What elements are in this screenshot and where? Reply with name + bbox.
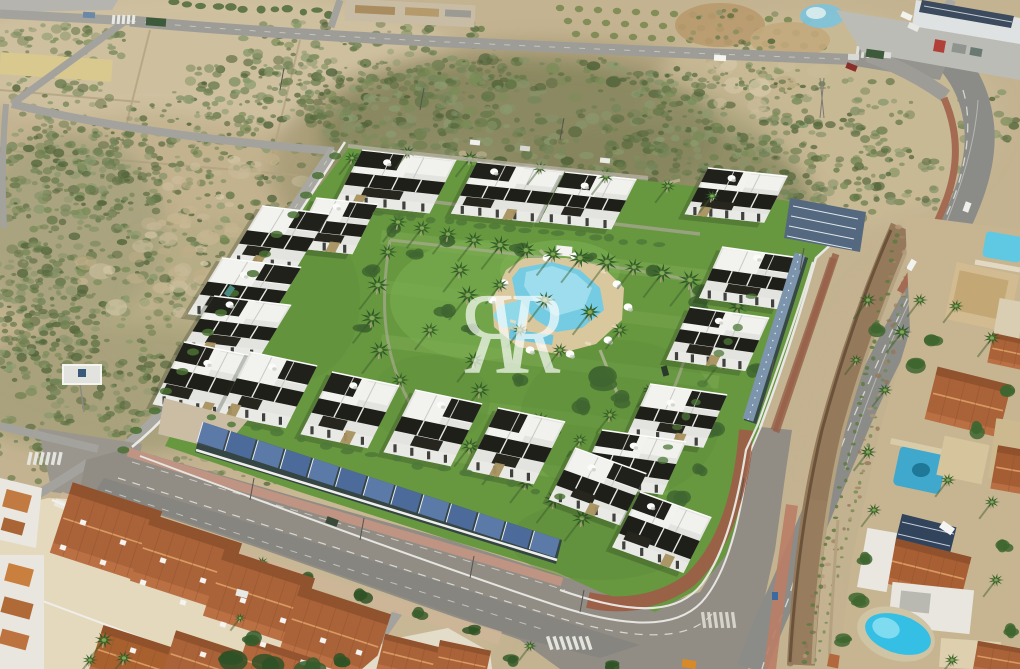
svg-text:R: R [503, 268, 562, 399]
